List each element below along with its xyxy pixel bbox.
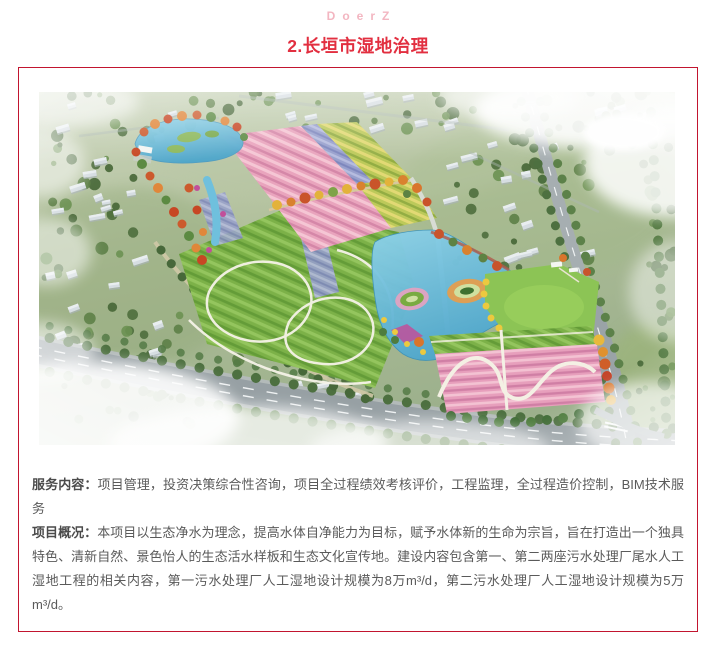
project-overview-paragraph: 项目概况：本项目以生态净水为理念，提高水体自净能力为目标，赋予水体新的生命为宗旨… xyxy=(32,521,684,617)
project-card: 服务内容：项目管理，投资决策综合性咨询，项目全过程绩效考核评价，工程监理，全过程… xyxy=(18,67,698,632)
service-content-text: 项目管理，投资决策综合性咨询，项目全过程绩效考核评价，工程监理，全过程造价控制，… xyxy=(32,477,684,516)
page-title: 2.长垣市湿地治理 xyxy=(0,33,716,58)
brand-logo: DoerZ xyxy=(0,9,716,23)
project-overview-text: 本项目以生态净水为理念，提高水体自净能力为目标，赋予水体新的生命为宗旨，旨在打造… xyxy=(32,525,684,612)
service-content-label: 服务内容： xyxy=(32,477,98,492)
top-haze xyxy=(39,92,675,162)
project-description: 服务内容：项目管理，投资决策综合性咨询，项目全过程绩效考核评价，工程监理，全过程… xyxy=(32,473,684,617)
project-aerial-rendering xyxy=(39,92,675,445)
service-content-paragraph: 服务内容：项目管理，投资决策综合性咨询，项目全过程绩效考核评价，工程监理，全过程… xyxy=(32,473,684,521)
aerial-svg xyxy=(39,92,675,445)
project-overview-label: 项目概况： xyxy=(32,525,97,540)
